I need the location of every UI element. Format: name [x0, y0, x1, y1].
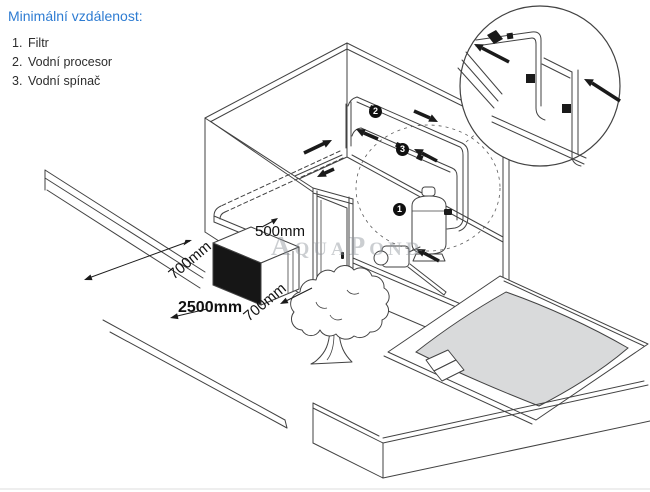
- legend-item-number: 1.: [12, 34, 28, 53]
- detail-inset: [458, 6, 620, 166]
- legend-item-number: 3.: [12, 72, 28, 91]
- legend-item-label: Vodní spínač: [28, 74, 100, 88]
- legend-item-label: Vodní procesor: [28, 55, 112, 69]
- marker-2-water-processor: 2: [369, 105, 382, 118]
- marker-1-filter: 1: [393, 203, 406, 216]
- dimension-2500mm: 2500mm: [178, 299, 242, 317]
- legend-item-number: 2.: [12, 53, 28, 72]
- filter-cap: [422, 187, 435, 196]
- marker-3-water-switch: 3: [396, 143, 409, 156]
- legend-item-water-switch: 3.Vodní spínač: [8, 72, 228, 91]
- legend-item-filter: 1.Filtr: [8, 34, 228, 53]
- watermark: AquaPond: [271, 231, 423, 262]
- legend: Minimální vzdálenost: 1.Filtr 2.Vodní pr…: [8, 8, 228, 91]
- legend-item-label: Filtr: [28, 36, 49, 50]
- page-title: Minimální vzdálenost:: [8, 8, 228, 24]
- legend-item-water-processor: 2.Vodní procesor: [8, 53, 228, 72]
